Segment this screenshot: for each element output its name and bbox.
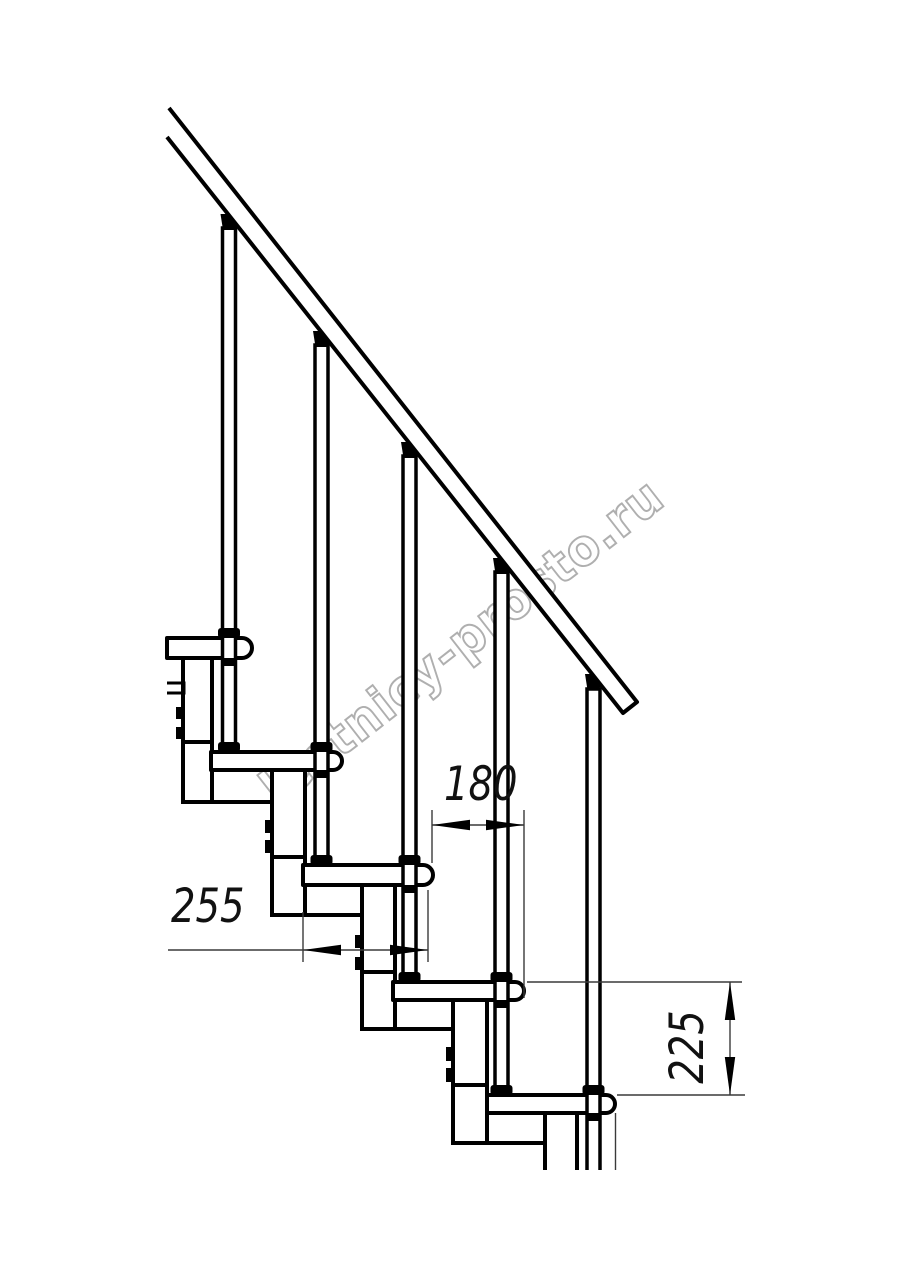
tread-1 [167,638,252,658]
baluster-4 [495,572,508,1095]
dimension-label-255: 255 [171,884,245,930]
baluster-1 [223,228,236,752]
dimension-label-225: 225 [665,1008,711,1087]
dimension-label-180: 180 [444,762,518,808]
baluster-3 [403,456,416,982]
staircase-side-view [0,0,914,1280]
support-module-1 [167,658,272,802]
baluster-5 [587,689,600,1170]
baluster-2 [315,345,328,865]
support-module-5 [545,1113,616,1170]
dimension-180 [432,810,524,998]
staircase-drawing-page: lestnicy-prosto.ru [0,0,914,1280]
